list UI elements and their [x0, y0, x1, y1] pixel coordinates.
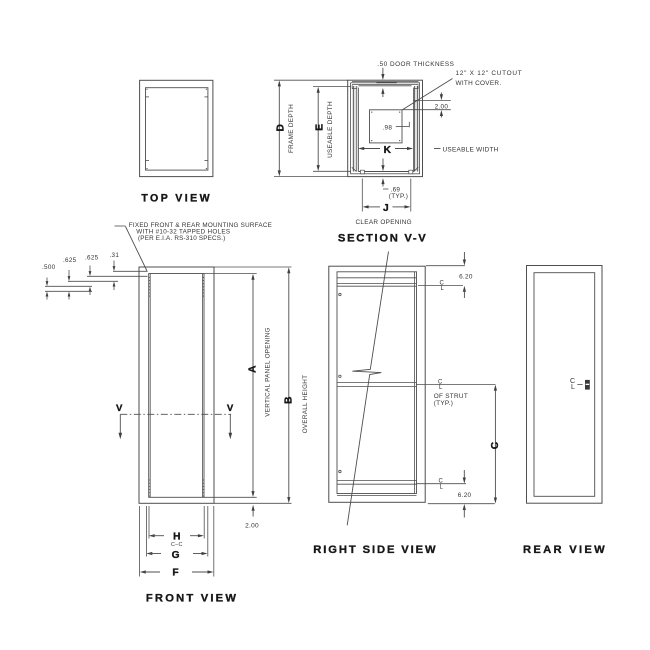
svg-text:C: C [490, 441, 501, 449]
svg-text:6.20: 6.20 [458, 492, 472, 499]
svg-text:.500: .500 [42, 264, 56, 271]
svg-text:2.00: 2.00 [245, 523, 259, 530]
svg-text:D: D [276, 124, 287, 132]
svg-text:.625: .625 [85, 255, 99, 262]
svg-text:G: G [172, 550, 180, 561]
svg-text:2.00: 2.00 [435, 103, 449, 110]
svg-text:FRAME DEPTH: FRAME DEPTH [288, 104, 295, 153]
svg-text:12" X 12" CUTOUT: 12" X 12" CUTOUT [456, 70, 523, 77]
svg-text:VERTICAL PANEL OPENING: VERTICAL PANEL OPENING [264, 327, 271, 417]
svg-text:USEABLE WIDTH: USEABLE WIDTH [443, 146, 499, 153]
svg-text:6.20: 6.20 [459, 273, 473, 280]
svg-text:H: H [173, 532, 181, 543]
svg-text:F: F [172, 568, 179, 579]
svg-text:C–C: C–C [171, 542, 183, 548]
svg-text:(TYP.): (TYP.) [434, 400, 453, 407]
svg-text:OVERALL HEIGHT: OVERALL HEIGHT [302, 375, 309, 434]
svg-text:CLEAR OPENING: CLEAR OPENING [356, 219, 412, 226]
svg-text:V: V [116, 403, 123, 414]
svg-text:.31: .31 [110, 252, 120, 259]
svg-text:TOP VIEW: TOP VIEW [141, 192, 212, 204]
svg-text:J: J [383, 203, 389, 214]
svg-text:RIGHT SIDE VIEW: RIGHT SIDE VIEW [313, 544, 437, 556]
svg-text:E: E [314, 124, 325, 131]
svg-text:FRONT VIEW: FRONT VIEW [146, 593, 238, 605]
svg-text:(TYP.): (TYP.) [389, 193, 408, 200]
svg-text:.50 DOOR THICKNESS: .50 DOOR THICKNESS [377, 61, 454, 68]
svg-text:V: V [227, 403, 234, 414]
svg-text:B: B [284, 396, 295, 404]
svg-text:L: L [571, 384, 575, 391]
svg-text:K: K [384, 145, 392, 156]
svg-text:.625: .625 [63, 257, 77, 264]
svg-text:A: A [248, 365, 259, 373]
svg-text:SECTION V-V: SECTION V-V [338, 233, 428, 245]
svg-text:USEABLE DEPTH: USEABLE DEPTH [327, 101, 334, 158]
svg-text:WITH COVER.: WITH COVER. [456, 80, 502, 87]
svg-text:.98: .98 [382, 125, 392, 132]
svg-text:(PER E.I.A. RS-310 SPECS.): (PER E.I.A. RS-310 SPECS.) [138, 235, 225, 242]
svg-text:REAR VIEW: REAR VIEW [523, 544, 607, 556]
